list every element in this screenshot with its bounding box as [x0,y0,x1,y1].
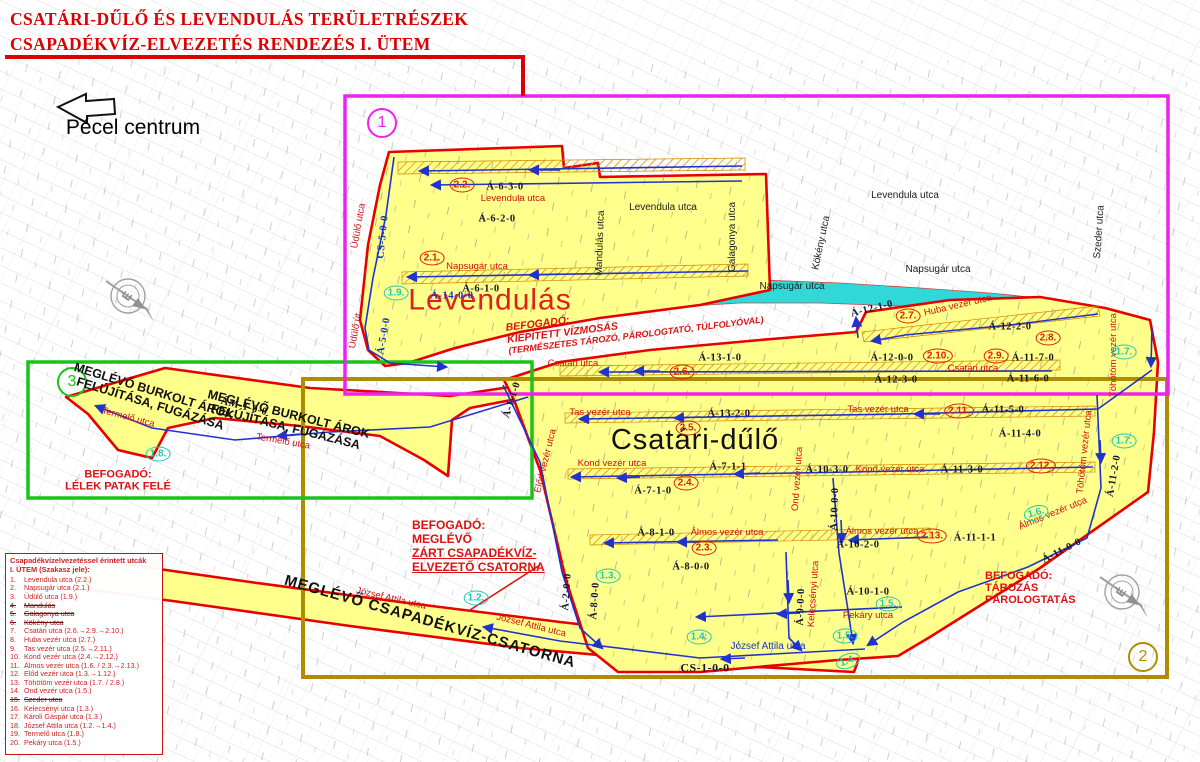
channel-code: Á-6-1-0 [462,283,499,294]
section-ref: 2.11. [944,404,974,419]
section-marker-1: 1 [367,108,397,138]
page-title: CSATÁRI-DŰLŐ ÉS LEVENDULÁS TERÜLETRÉSZEK… [10,7,468,56]
channel-code: Á-9-0-0 [795,588,807,626]
legend-box: Csapadékvízelvezetéssel érintett utcák I… [5,553,163,755]
channel-code: Á-11-7-0 [1012,352,1055,363]
street-label: Kond vezér utca [578,459,647,469]
channel-code: CS-1-0-0 [680,662,729,675]
street-label: Napsugár utca [905,265,970,276]
note-line: BEFOGADÓ: [412,518,545,532]
street-label: Levendula utca [871,191,939,202]
note-befogado-tarozas: BEFOGADÓ: TÁROZÁS PÁROLOGTATÁS [985,570,1076,606]
section-ref: 1.4. [687,630,712,645]
section-ref: 2.12. [1026,459,1056,474]
title-line-2: CSAPADÉKVÍZ-ELVEZETÉS RENDEZÉS I. ÜTEM [10,32,468,57]
note-line: BEFOGADÓ: [65,469,171,481]
section-ref: 2.1. [420,251,445,266]
street-label: Kond vezér utca [856,465,925,475]
section-ref: 1.7. [1112,434,1137,449]
flow-arrow [530,274,560,275]
legend-item: 20.Pekáry utca (1.5.) [10,739,139,748]
flow-arrow [722,658,745,659]
note-befogado-lelek: BEFOGADÓ: LÉLEK PATAK FELÉ [65,469,171,492]
street-label: Csatári utca [548,359,599,369]
channel-code: Á-7-1-0 [634,485,671,496]
channel-code: Á-12-2-0 [988,321,1031,332]
section-ref: 2.5. [676,421,701,436]
channel-code: Á-12-0-0 [870,352,913,363]
note-line: PÁROLOGTATÁS [985,594,1076,606]
note-line: ZÁRT CSAPADÉKVÍZ- [412,546,545,560]
channel-code: Á-10-0-0 [829,487,842,530]
section-ref: 1.5. [876,597,901,612]
section-ref: 2.3. [692,541,717,556]
flow-arrow [788,580,789,602]
street-label: Pekáry utca [843,611,893,621]
drain-right-edge [1151,328,1152,366]
street-label: József Attila utca [730,642,805,653]
note-line: BEFOGADÓ: [985,570,1076,582]
section-ref: 2.7. [896,309,921,324]
flow-arrow [618,477,640,478]
flow-arrow [735,473,760,474]
channel-code: Á-11-4-0 [999,428,1042,439]
pecel-centrum-label: Pécel centrum [66,117,200,139]
section-ref: 2.8. [1036,331,1061,346]
street-label: Álmos vezér utca [691,528,764,538]
channel-code: Á-6-3-0 [486,181,523,192]
note-line: MEGLÉVŐ [412,532,545,546]
section-ref: 1.7. [1112,345,1137,360]
plan-map: CSATÁRI-DŰLŐ ÉS LEVENDULÁS TERÜLETRÉSZEK… [0,0,1200,762]
legend-title-2: I. ÜTEM (Szakasz jele): [10,566,160,575]
street-label: Tas vezér utca [569,408,630,418]
title-line-1: CSATÁRI-DŰLŐ ÉS LEVENDULÁS TERÜLETRÉSZEK [10,7,468,32]
section-ref: 1.5. [833,629,858,644]
flow-arrow [675,417,700,418]
street-label: Tas vezér utca [847,405,908,415]
flow-arrow [1100,440,1101,462]
section-ref: 2.9. [984,349,1009,364]
section-ref: 1.8. [146,447,171,462]
channel-code: Á-8-1-0 [637,527,674,538]
channel-code: Á-13-2-0 [707,408,750,419]
channel-code: Á-7-1-1 [709,461,746,472]
section-ref: 1.3. [596,569,621,584]
street-label: Napsugár utca [446,262,508,272]
section-ref: 2.4. [674,476,699,491]
channel-code: Á-10-2-0 [836,539,879,550]
legend-list: 1.Levendula utca (2.2.)2.Napsugár utca (… [10,576,139,748]
channel-code: Á-10-3-0 [805,464,848,475]
street-label: Álmos vezér utca [846,527,919,537]
channel-code: Á-11-5-0 [982,404,1025,415]
channel-code: Á-11-3-0 [941,464,984,475]
street-label: Napsugár utca [759,282,824,293]
channel-code: Á-12-3-0 [874,374,917,385]
street-label: Levendula utca [629,203,697,214]
note-line: ELVEZETŐ CSATORNA [412,560,545,574]
channel-code: Á-13-1-0 [698,352,741,363]
street-label: Csatári utca [948,364,999,374]
section-ref: 2.6. [670,365,695,380]
section-ref: 1.9. [384,286,409,301]
note-line: LÉLEK PATAK FELÉ [65,481,171,493]
channel-code: Á-6-2-0 [478,213,515,224]
street-label: Mandulás utca [595,210,608,275]
section-ref: 2.2. [450,178,475,193]
street-label: Galagonya utca [728,202,739,272]
street-label: Levendula utca [481,194,545,204]
section-marker-2: 2 [1128,642,1158,672]
channel-code: Á-11-6-0 [1007,373,1050,384]
note-befogado-zart: BEFOGADÓ: MEGLÉVŐ ZÁRT CSAPADÉKVÍZ- ELVE… [412,518,545,574]
section-ref: 2.13. [917,529,947,544]
section-ref: 1.2. [464,591,489,606]
note-line: TÁROZÁS [985,582,1076,594]
channel-code: Á-11-1-1 [954,532,997,543]
channel-code: Á-10-1-0 [846,586,889,597]
section-ref: 2.10. [923,349,953,364]
channel-code: Á-8-0-0 [672,561,709,572]
